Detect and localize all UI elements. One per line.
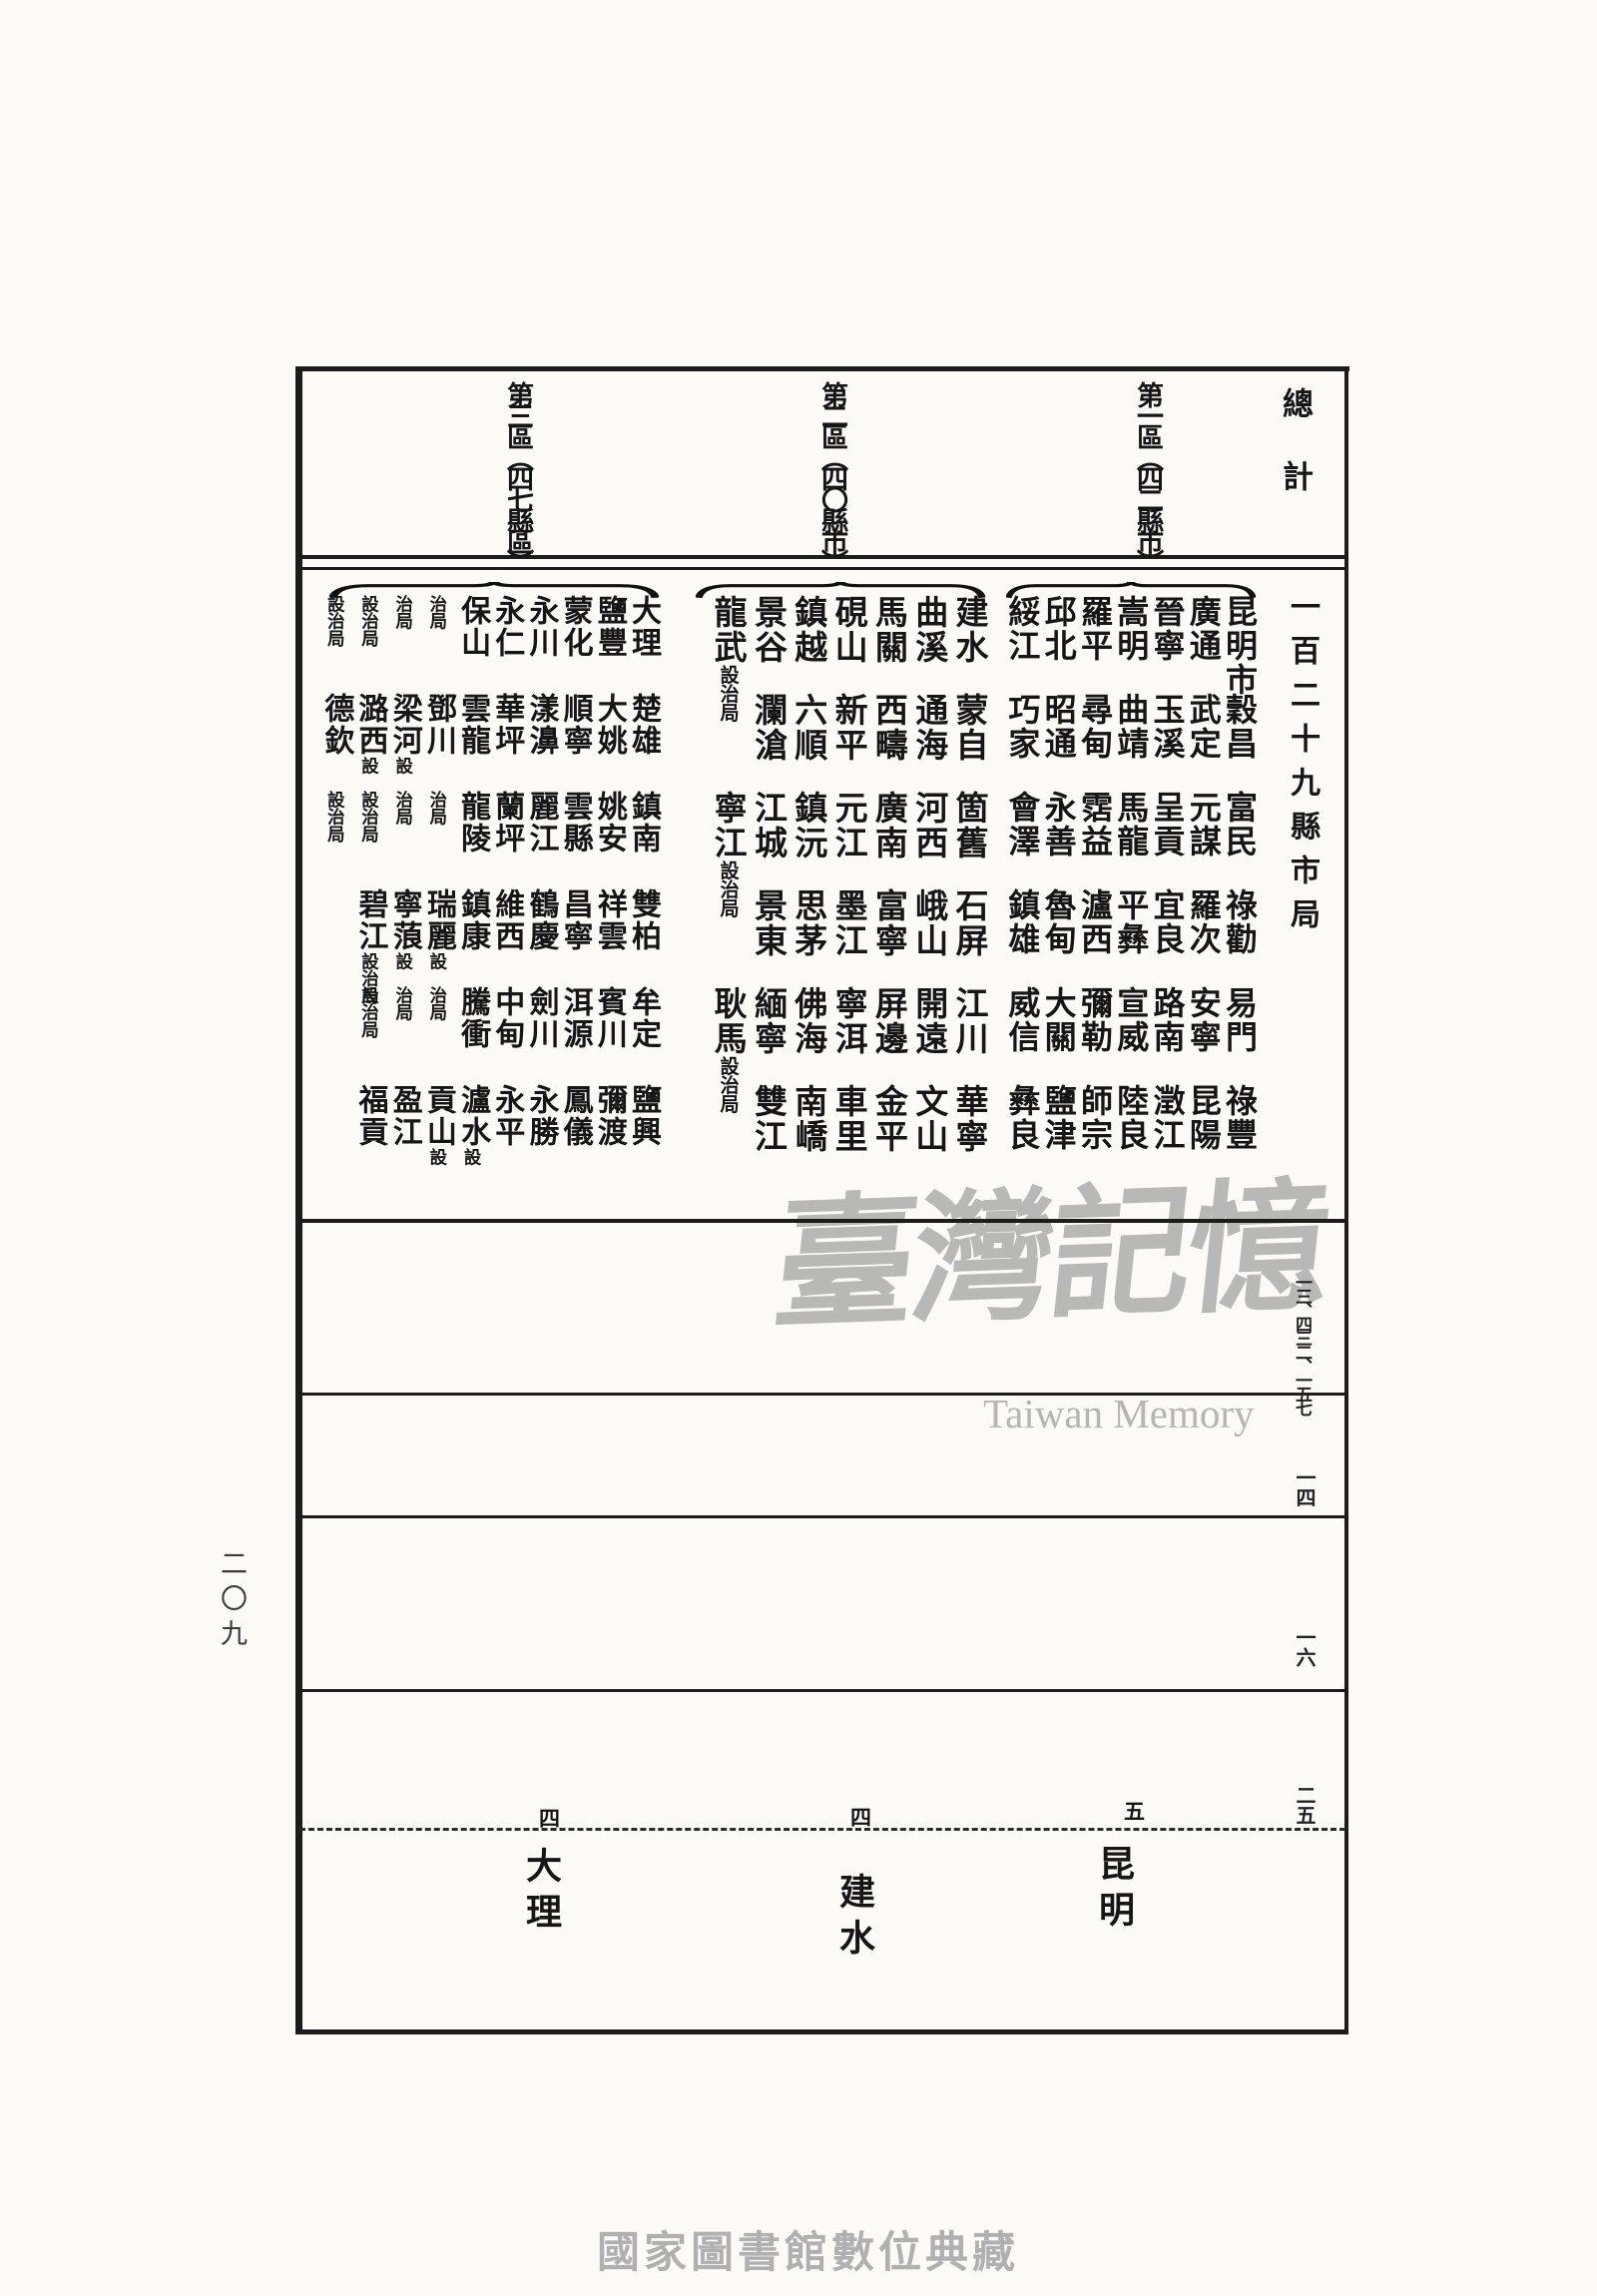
county-name: 蒙自 [950, 693, 986, 763]
bureau-suffix: 治局 [394, 595, 414, 630]
county-name: 劍川 [524, 986, 557, 1050]
county-name: 佛海 [790, 986, 825, 1056]
county-name: 鹽興 [627, 1084, 660, 1148]
bureau-suffix: 設治局 [717, 861, 738, 917]
county-name: 瑞麗 [422, 888, 455, 952]
county-name: 德欽 [319, 693, 352, 757]
county-entry: 寧江設治局 [710, 791, 744, 940]
county-entry: 設治局 [320, 791, 351, 940]
total-column-header: 總計 [1280, 387, 1311, 587]
county-name: 鎮南 [627, 791, 660, 855]
county-name: 威信 [1004, 986, 1040, 1054]
county-name: 峨山 [910, 888, 946, 958]
county-name: 廣通 [1186, 595, 1222, 663]
bureau-suffix: 設 [360, 757, 380, 774]
county-name: 雲縣 [559, 791, 592, 855]
county-name: 麗江 [524, 791, 557, 855]
county-name: 蘭坪 [490, 791, 523, 855]
county-entry: 龍武設治局 [710, 595, 744, 745]
county-name: 雙江 [749, 1084, 785, 1154]
county-name: 姚安 [593, 791, 626, 855]
bureau-suffix: 設治局 [360, 986, 380, 1038]
bureau-suffix: 治局 [394, 791, 414, 826]
county-name: 祥雲 [593, 888, 626, 952]
county-name: 石屏 [950, 888, 986, 958]
county-name: 瀘西 [1077, 888, 1113, 956]
county-name: 順寧 [559, 693, 592, 757]
bottom-name-dali: 大理 [523, 1847, 559, 1977]
county-name: 師宗 [1077, 1084, 1113, 1152]
bureau-suffix: 治局 [428, 595, 448, 630]
county-name: 梁河 [388, 693, 421, 757]
margin-number-4: 二五 [1294, 1785, 1314, 1845]
region-1-header: 第一區︵四二縣市︶ [1134, 381, 1161, 591]
county-name: 屏邊 [869, 986, 905, 1056]
region-2-header: 第二區︵四〇縣市︶ [818, 381, 845, 591]
county-name: 陸良 [1113, 1084, 1149, 1152]
county-name: 鹽豐 [593, 595, 626, 659]
county-entry: 貢山設 [423, 1084, 454, 1234]
county-name: 開遠 [910, 986, 946, 1056]
county-entry: 陸良 [1114, 1084, 1147, 1234]
county-name: 昭通 [1041, 693, 1077, 761]
county-name: 曲溪 [910, 595, 946, 665]
county-name: 路南 [1149, 986, 1185, 1054]
county-name: 永仁 [490, 595, 523, 659]
county-name: 龍陵 [456, 791, 489, 855]
county-name: 尋甸 [1077, 693, 1113, 761]
county-name: 寧江 [709, 791, 745, 861]
county-name: 西疇 [869, 693, 905, 763]
county-entry: 澂江 [1150, 1084, 1183, 1234]
county-name: 祿勸 [1222, 888, 1258, 956]
county-entry: 雙江 [750, 1084, 784, 1234]
table-border-right [1344, 366, 1348, 2034]
county-name: 寧蒗 [388, 888, 421, 952]
county-name: 昆陽 [1186, 1084, 1222, 1152]
county-entry: 南嶠 [790, 1084, 823, 1234]
county-entry: 華寧 [951, 1084, 985, 1234]
county-name: 武定 [1186, 693, 1222, 761]
county-name: 騰衝 [456, 986, 489, 1050]
county-name: 澂江 [1149, 1084, 1185, 1152]
county-name: 六順 [790, 693, 825, 763]
county-entry: 祿豐 [1223, 1084, 1256, 1234]
county-name: 鎮雄 [1004, 888, 1040, 956]
row-rule-4 [299, 1689, 1345, 1692]
county-name: 鹽津 [1041, 1084, 1077, 1152]
county-name: 福貢 [354, 1084, 387, 1148]
county-name: 牟定 [627, 986, 660, 1050]
county-entry: 永勝 [525, 1084, 556, 1234]
county-name: 巧家 [1004, 693, 1040, 761]
bureau-suffix: 設治局 [360, 595, 380, 647]
scanned-document-page: { "page": { "page_number": "二〇九", "capti… [0, 0, 1597, 2296]
county-name: 會澤 [1004, 791, 1040, 859]
bureau-suffix: 設 [428, 952, 448, 969]
county-entry: 金平 [870, 1084, 904, 1234]
county-entry: 耿馬設治局 [710, 986, 744, 1136]
county-entry: 車里 [830, 1084, 864, 1234]
county-entry: 鹽興 [628, 1084, 659, 1234]
county-name: 碧江 [354, 888, 387, 952]
page-number: 二〇九 [218, 1549, 245, 1689]
county-name: 緬寧 [749, 986, 785, 1056]
county-name: 楚雄 [627, 693, 660, 757]
county-entry: 彝良 [1005, 1084, 1038, 1234]
county-name: 寧洱 [829, 986, 865, 1056]
bottom-name-kunming: 昆明 [1096, 1845, 1132, 1975]
county-name: 綏江 [1004, 595, 1040, 663]
bureau-suffix: 設治局 [360, 791, 380, 843]
bureau-suffix: 治局 [394, 986, 414, 1021]
county-name: 昌寧 [559, 888, 592, 952]
county-name: 江城 [749, 791, 785, 861]
bureau-suffix: 設 [394, 757, 414, 774]
county-name: 貢山 [422, 1084, 455, 1148]
county-name: 羅平 [1077, 595, 1113, 663]
row-rule-3 [299, 1515, 1345, 1518]
county-name: 鎮越 [790, 595, 825, 665]
county-name: 平彝 [1113, 888, 1149, 956]
county-name: 鶴慶 [524, 888, 557, 952]
region-3-cell: 大理鹽豐蒙化永川永仁保山治局治局設治局設治局楚雄大姚順寧漾濞華坪雲龍鄧川梁河設潞… [329, 595, 659, 1214]
county-name: 盈江 [388, 1084, 421, 1148]
county-name: 馬關 [869, 595, 905, 665]
county-name: 永川 [524, 595, 557, 659]
county-group: 祿豐昆陽澂江陸良師宗鹽津彝良 [1002, 1084, 1256, 1234]
county-name: 霑益 [1077, 791, 1113, 859]
region-3-header: 第三區︵四七縣區︶ [504, 381, 531, 591]
county-entry: 福貢 [354, 1084, 385, 1234]
county-name: 瀘水 [456, 1084, 489, 1148]
county-name: 蒙化 [559, 595, 592, 659]
bureau-suffix: 設治局 [325, 791, 345, 843]
bottom-marker-2: 四 [850, 1802, 871, 1832]
county-name: 華坪 [490, 693, 523, 757]
county-name: 箇舊 [950, 791, 986, 861]
county-name: 易門 [1222, 986, 1258, 1054]
county-name: 洱源 [559, 986, 592, 1050]
county-name: 魯甸 [1041, 888, 1077, 956]
bureau-suffix: 設 [428, 1148, 448, 1165]
county-name: 昆明市 [1222, 595, 1258, 697]
grand-total-value: 一百二十九縣市局 [1287, 591, 1317, 990]
county-name: 雲龍 [456, 693, 489, 757]
county-name: 富民 [1222, 791, 1258, 859]
county-name: 潞西 [354, 693, 387, 757]
county-name: 呈貢 [1149, 791, 1185, 859]
county-name: 瀾滄 [749, 693, 785, 763]
county-name: 車里 [829, 1084, 865, 1154]
county-name: 河西 [910, 791, 946, 861]
county-name: 新平 [829, 693, 865, 763]
county-name: 墨江 [829, 888, 865, 958]
county-name: 羅次 [1186, 888, 1222, 956]
county-entry: 鹽津 [1041, 1084, 1074, 1234]
county-name: 思茅 [790, 888, 825, 958]
county-name: 嵩明 [1113, 595, 1149, 663]
county-name: 景谷 [749, 595, 785, 665]
county-entry: 永平 [491, 1084, 522, 1234]
county-name: 鎮康 [456, 888, 489, 952]
bottom-name-jianshui: 建水 [836, 1873, 872, 2003]
county-name: 雙柏 [627, 888, 660, 952]
county-name: 富寧 [869, 888, 905, 958]
library-archive-caption: 國家圖書館數位典藏 [597, 2218, 1019, 2280]
county-name: 賓川 [593, 986, 626, 1050]
county-name: 祿豐 [1222, 1084, 1258, 1152]
county-entry: 盈江 [389, 1084, 420, 1234]
region-2-cell: 建水曲溪馬關硯山鎮越景谷龍武設治局蒙自通海西疇新平六順瀾滄箇舊河西廣南元江鎮沅江… [696, 595, 985, 1214]
county-entry: 師宗 [1078, 1084, 1111, 1234]
county-name: 漾濞 [524, 693, 557, 757]
county-name: 永勝 [524, 1084, 557, 1148]
row-rule-2 [299, 1393, 1345, 1396]
county-name: 晉寧 [1149, 595, 1185, 663]
county-name: 彌勒 [1077, 986, 1113, 1054]
bureau-suffix: 治局 [428, 791, 448, 826]
county-name: 彌渡 [593, 1084, 626, 1148]
margin-number-3: 一六 [1294, 1627, 1314, 1687]
county-name: 龍武 [709, 595, 745, 665]
county-name: 景東 [749, 888, 785, 958]
county-name: 廣南 [869, 791, 905, 861]
county-group: 鹽興彌渡鳳儀永勝永平瀘水設貢山設盈江福貢 [351, 1084, 659, 1234]
margin-number-1: 一三、四三二、一五七 [1294, 1274, 1311, 1404]
bottom-marker-3: 四 [539, 1803, 560, 1833]
county-name: 通海 [910, 693, 946, 763]
table-border-top [295, 366, 1349, 371]
county-name: 元謀 [1186, 791, 1222, 859]
county-entry: 鳳儀 [559, 1084, 590, 1234]
county-name: 元江 [829, 791, 865, 861]
taiwan-memory-latin-watermark: Taiwan Memory [983, 1390, 1255, 1437]
county-name: 玉溪 [1149, 693, 1185, 761]
bureau-suffix: 設 [394, 952, 414, 969]
county-name: 金平 [869, 1084, 905, 1154]
county-group: 華寧文山金平車里南嶠雙江 [744, 1084, 985, 1234]
county-entry: 彌渡 [594, 1084, 625, 1234]
county-name: 維西 [490, 888, 523, 952]
county-name: 南嶠 [790, 1084, 825, 1154]
bureau-suffix: 設治局 [325, 595, 345, 647]
bottom-marker-1: 五 [1124, 1796, 1145, 1826]
table-border-left [295, 366, 302, 2034]
county-name: 永善 [1041, 791, 1077, 859]
bureau-suffix: 設 [462, 1148, 482, 1165]
county-name: 硯山 [829, 595, 865, 665]
county-name: 江川 [950, 986, 986, 1056]
margin-number-2: 一四 [1294, 1467, 1314, 1527]
county-name: 安寧 [1186, 986, 1222, 1054]
county-name: 邱北 [1041, 595, 1077, 663]
county-name: 中甸 [490, 986, 523, 1050]
county-name: 曲靖 [1113, 693, 1149, 761]
county-entry: 文山 [910, 1084, 944, 1234]
bureau-suffix: 設治局 [717, 1056, 738, 1113]
county-name: 耿馬 [709, 986, 745, 1056]
county-name: 華寧 [950, 1084, 986, 1154]
county-name: 大姚 [593, 693, 626, 757]
county-name: 馬龍 [1113, 791, 1149, 859]
county-name: 鄧川 [422, 693, 455, 757]
county-name: 建水 [950, 595, 986, 665]
county-name: 穀昌 [1222, 693, 1258, 761]
county-name: 宜良 [1149, 888, 1185, 956]
county-name: 鳳儀 [559, 1084, 592, 1148]
region-1-cell: 昆明市廣通晉寧嵩明羅平邱北綏江穀昌武定玉溪曲靖尋甸昭通巧家富民元謀呈貢馬龍霑益永… [1006, 595, 1256, 1214]
county-name: 宣威 [1113, 986, 1149, 1054]
row-rule-dashed [299, 1828, 1345, 1831]
county-name: 永平 [490, 1084, 523, 1148]
bureau-suffix: 設治局 [717, 665, 738, 722]
table-border-bottom [295, 2029, 1348, 2034]
bureau-suffix: 治局 [428, 986, 448, 1021]
county-name: 大關 [1041, 986, 1077, 1054]
county-name: 大理 [627, 595, 660, 659]
county-name: 保山 [456, 595, 489, 659]
county-name: 彝良 [1004, 1084, 1040, 1152]
county-entry: 瀘水設 [457, 1084, 488, 1234]
county-entry: 昆陽 [1186, 1084, 1219, 1234]
county-name: 鎮沅 [790, 791, 825, 861]
county-name: 文山 [910, 1084, 946, 1154]
